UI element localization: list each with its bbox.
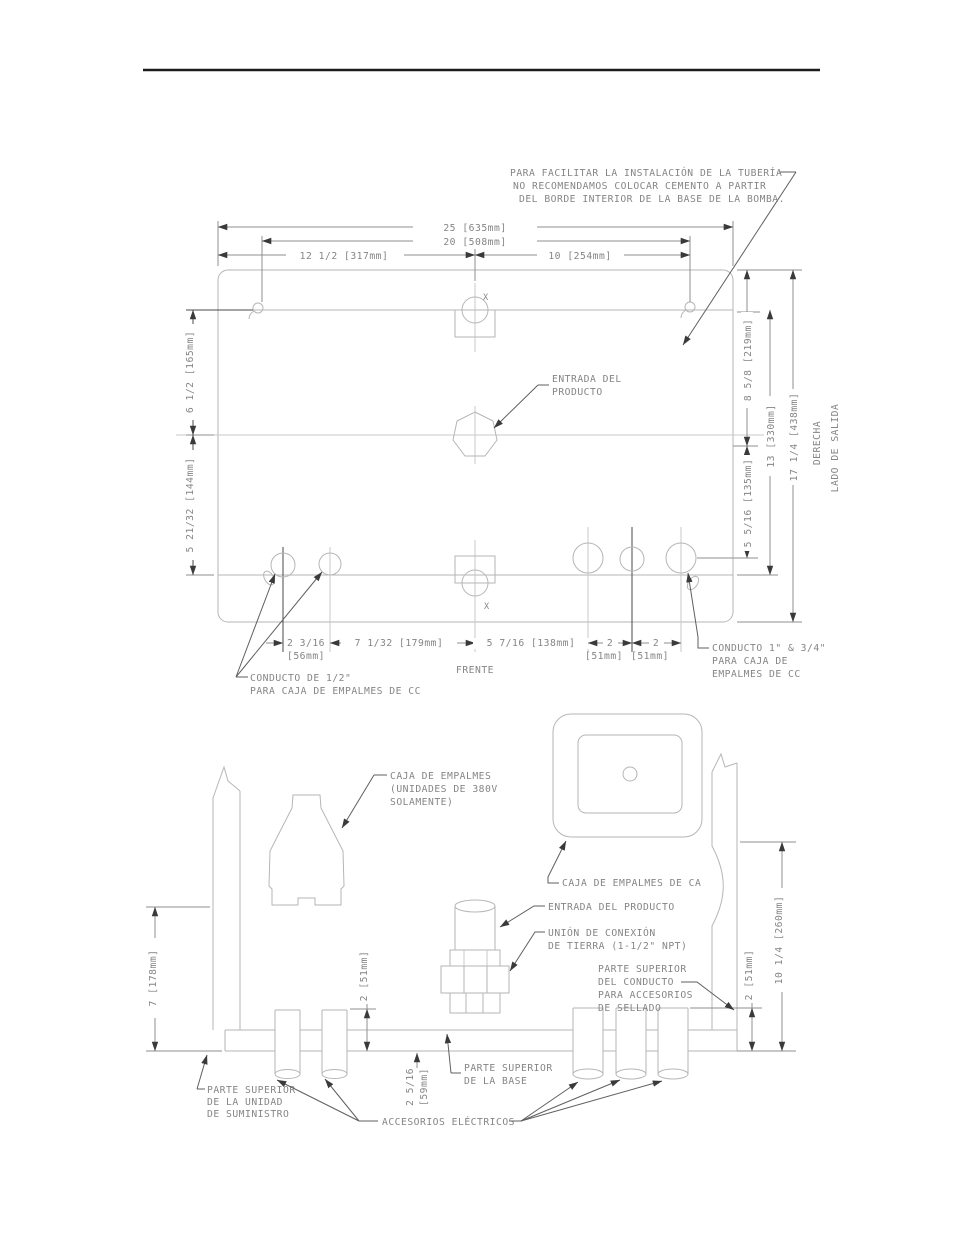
- label-frente: FRENTE: [456, 665, 494, 676]
- dim-7-1-32: 7 1/32 [179mm]: [355, 638, 444, 649]
- dim-6-1-2: 6 1/2 [165mm]: [185, 331, 196, 413]
- x-marker-top: X: [483, 293, 489, 303]
- dim-25: 25 [635mm]: [443, 223, 506, 234]
- manual-page: X X 25 [635mm] 20 [508mm]: [0, 0, 954, 1235]
- dim-10-1-4: 10 1/4 [260mm]: [774, 896, 785, 985]
- side-view: 7 [178mm] 2 [51mm] 2 5/16 [59mm] 2 [51mm…: [146, 714, 796, 1128]
- product-inlet-pipe: [441, 900, 509, 1013]
- label-entrada-producto-1: ENTRADA DEL: [552, 374, 622, 385]
- dim-2-b-mm: [51mm]: [631, 651, 669, 662]
- label-caja-380-3: SOLAMENTE): [390, 797, 453, 808]
- slot-hole-left: [249, 303, 263, 319]
- dim-2-right: 2 [51mm]: [744, 950, 755, 1001]
- dim-7: 7 [178mm]: [148, 950, 159, 1007]
- label-conducto-half-2: PARA CAJA DE EMPALMES DE CC: [250, 686, 421, 697]
- dim-2-3-16-mm: [56mm]: [287, 651, 325, 662]
- left-post: [213, 767, 240, 1030]
- ac-junction-box: [553, 714, 702, 837]
- label-entrada-producto-side: ENTRADA DEL PRODUCTO: [548, 902, 675, 913]
- dim-17-1-4: 17 1/4 [438mm]: [789, 393, 800, 482]
- drawing-svg: X X 25 [635mm] 20 [508mm]: [0, 0, 954, 1235]
- label-union-tierra-1: UNIÓN DE CONEXIÓN: [548, 926, 656, 939]
- label-lado-de-salida: LADO DE SALIDA: [830, 404, 841, 493]
- label-conducto-134-2: PARA CAJA DE: [712, 656, 788, 667]
- right-column: [712, 754, 737, 1030]
- label-conducto-134-3: EMPALMES DE CC: [712, 669, 801, 680]
- junction-box-380v: [269, 795, 344, 905]
- dim-20: 20 [508mm]: [443, 237, 506, 248]
- dim-2-5-16-mm: [59mm]: [419, 1068, 430, 1106]
- label-conducto-half-1: CONDUCTO DE 1/2": [250, 673, 351, 684]
- label-conducto-134-1: CONDUCTO 1" & 3/4": [712, 643, 826, 654]
- dim-2-mid: 2 [51mm]: [359, 951, 370, 1002]
- label-derecha: DERECHA: [812, 421, 823, 465]
- dim-2-5-16: 2 5/16: [405, 1068, 416, 1106]
- top-view: X X 25 [635mm] 20 [508mm]: [176, 166, 841, 697]
- label-caja-ca: CAJA DE EMPALMES DE CA: [562, 878, 701, 889]
- note-line-2: NO RECOMENDAMOS COLOCAR CEMENTO A PARTIR: [513, 181, 766, 192]
- note-line-1: PARA FACILITAR LA INSTALACIÓN DE LA TUBE…: [510, 166, 782, 179]
- dim-10: 10 [254mm]: [548, 251, 611, 262]
- x-marker-bottom: X: [484, 602, 490, 612]
- label-parte-unidad-3: DE SUMINISTRO: [207, 1109, 289, 1120]
- label-parte-unidad-1: PARTE SUPERIOR: [207, 1085, 296, 1096]
- dim-5-21-32: 5 21/32 [144mm]: [185, 458, 196, 553]
- dim-2-3-16: 2 3/16: [287, 638, 325, 649]
- dim-12-1-2: 12 1/2 [317mm]: [300, 251, 389, 262]
- label-parte-conducto-2: DEL CONDUCTO: [598, 977, 674, 988]
- label-parte-base-2: DE LA BASE: [464, 1076, 527, 1087]
- dim-8-5-8: 8 5/8 [219mm]: [743, 319, 754, 401]
- label-union-tierra-2: DE TIERRA (1-1/2" NPT): [548, 941, 687, 952]
- label-parte-unidad-2: DE LA UNIDAD: [207, 1097, 283, 1108]
- label-caja-380-2: (UNIDADES DE 380V: [390, 784, 498, 795]
- dim-2-a: 2: [607, 638, 613, 649]
- label-parte-base-1: PARTE SUPERIOR: [464, 1063, 553, 1074]
- dim-5-5-16: 5 5/16 [135mm]: [743, 459, 754, 548]
- dim-2-a-mm: [51mm]: [585, 651, 623, 662]
- note-line-3: DEL BORDE INTERIOR DE LA BASE DE LA BOMB…: [519, 194, 785, 205]
- dim-5-7-16: 5 7/16 [138mm]: [487, 638, 576, 649]
- label-parte-conducto-4: DE SELLADO: [598, 1003, 661, 1014]
- dim-13: 13 [330mm]: [766, 404, 777, 467]
- label-entrada-producto-2: PRODUCTO: [552, 387, 603, 398]
- label-accesorios-electricos: ACCESORIOS ELÉCTRICOS: [382, 1115, 515, 1128]
- label-caja-380-1: CAJA DE EMPALMES: [390, 771, 491, 782]
- label-parte-conducto-3: PARA ACCESORIOS: [598, 990, 693, 1001]
- dim-2-b: 2: [653, 638, 659, 649]
- label-parte-conducto-1: PARTE SUPERIOR: [598, 964, 687, 975]
